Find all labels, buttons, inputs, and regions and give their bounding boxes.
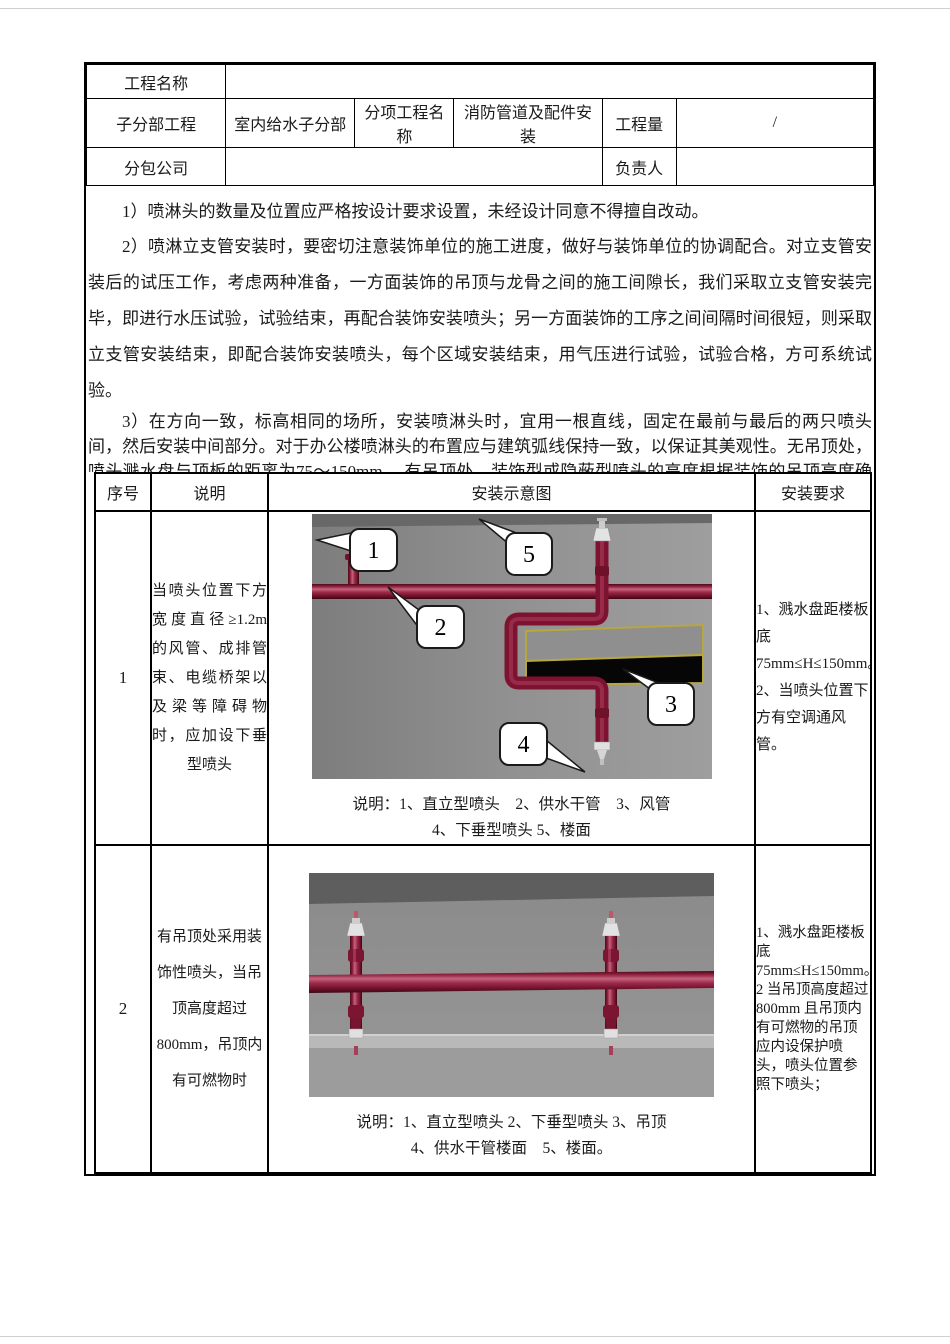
- row2-number: 2: [95, 845, 151, 1173]
- sub-division-value: 室内给水子分部: [226, 99, 355, 148]
- subcontractor-label: 分包公司: [87, 148, 226, 186]
- row1-diagram: 1 5 2: [312, 514, 712, 779]
- project-info-table: 工程名称 子分部工程 室内给水子分部 分项工程名称 消防管道及配件安装 工程量 …: [86, 64, 874, 186]
- row2-diagram: [309, 873, 714, 1097]
- col-header-diagram: 安装示意图: [268, 473, 755, 511]
- paragraph-1: 1）喷淋头的数量及位置应严格按设计要求设置，未经设计同意不得擅自改动。: [88, 194, 872, 229]
- below-ceiling-area: [309, 1048, 714, 1097]
- page-bottom-edge: [0, 1336, 950, 1337]
- row1-caption-line2: 4、下垂型喷头 5、楼面: [269, 818, 754, 844]
- ceiling-sprinkler-diagram: [309, 873, 714, 1097]
- row2-description: 有吊顶处采用装饰性喷头，当吊顶高度超过800mm，吊顶内有可燃物时: [152, 919, 267, 1099]
- sprinkler-duct-diagram: 1 5 2: [312, 514, 712, 779]
- manager-label: 负责人: [602, 148, 676, 186]
- col-header-requirements: 安装要求: [755, 473, 871, 511]
- row1-caption-line1: 说明：1、直立型喷头 2、供水干管 3、风管: [269, 792, 754, 818]
- row1-caption: 说明：1、直立型喷头 2、供水干管 3、风管 4、下垂型喷头 5、楼面: [269, 792, 754, 844]
- callout-5-label: 5: [523, 542, 535, 568]
- quantity-value: /: [676, 99, 873, 148]
- row2-requirements: 1、溅水盘距楼板底75mm≤H≤150mm。 2 当吊顶高度超过 800mm 且…: [756, 924, 870, 1095]
- page-top-edge: [0, 8, 950, 9]
- row2-caption: 说明：1、直立型喷头 2、下垂型喷头 3、吊顶 4、供水干管楼面 5、楼面。: [269, 1110, 754, 1162]
- body-paragraphs: 1）喷淋头的数量及位置应严格按设计要求设置，未经设计同意不得擅自改动。 2）喷淋…: [86, 186, 874, 472]
- project-name-value: [226, 65, 874, 99]
- callout-2-label: 2: [434, 615, 446, 641]
- installation-table: 序号 说明 安装示意图 安装要求 1 当喷头位置下方宽度直径≥1.2m 的风管、…: [94, 472, 872, 1174]
- document-body: 工程名称 子分部工程 室内给水子分部 分项工程名称 消防管道及配件安装 工程量 …: [84, 62, 876, 1176]
- sub-item-label: 分项工程名称: [355, 99, 454, 148]
- callout-1-label: 1: [367, 538, 379, 564]
- suspended-ceiling-edge: [309, 1034, 714, 1036]
- row2-caption-line1: 说明：1、直立型喷头 2、下垂型喷头 3、吊顶: [269, 1110, 754, 1136]
- manager-value: [676, 148, 873, 186]
- callout-4-label: 4: [517, 732, 529, 758]
- row1-description: 当喷头位置下方宽度直径≥1.2m 的风管、成排管束、电缆桥架以及梁等障碍物时，应…: [152, 577, 267, 780]
- subcontractor-value: [226, 148, 602, 186]
- sub-division-label: 子分部工程: [87, 99, 226, 148]
- quantity-label: 工程量: [602, 99, 676, 148]
- document-page: 工程名称 子分部工程 室内给水子分部 分项工程名称 消防管道及配件安装 工程量 …: [0, 0, 950, 1344]
- suspended-ceiling: [309, 1036, 714, 1048]
- col-header-description: 说明: [151, 473, 268, 511]
- row1-requirements: 1、溅水盘距楼板底75mm≤H≤150mm。 2、当喷头位置下方有空调通风管。: [756, 597, 870, 759]
- paragraph-3: 3）在方向一致，标高相同的场所，安装喷淋头时，宜用一根直线，固定在最前与最后的两…: [88, 409, 872, 472]
- callout-3-label: 3: [665, 692, 677, 718]
- col-header-no: 序号: [95, 473, 151, 511]
- table-row: 1 当喷头位置下方宽度直径≥1.2m 的风管、成排管束、电缆桥架以及梁等障碍物时…: [95, 511, 871, 845]
- supply-main-pipe: [312, 584, 712, 599]
- row2-caption-line2: 4、供水干管楼面 5、楼面。: [269, 1136, 754, 1162]
- paragraph-2: 2）喷淋立支管安装时，要密切注意装饰单位的施工进度，做好与装饰单位的协调配合。对…: [88, 229, 872, 409]
- table-row: 2 有吊顶处采用装饰性喷头，当吊顶高度超过800mm，吊顶内有可燃物时: [95, 845, 871, 1173]
- installation-table-header-row: 序号 说明 安装示意图 安装要求: [95, 473, 871, 511]
- project-name-label: 工程名称: [87, 65, 226, 99]
- row1-diagram-cell: 1 5 2: [268, 511, 755, 845]
- row1-number: 1: [95, 511, 151, 845]
- sub-item-value: 消防管道及配件安装: [454, 99, 602, 148]
- air-duct: [526, 625, 703, 685]
- row2-diagram-cell: 说明：1、直立型喷头 2、下垂型喷头 3、吊顶 4、供水干管楼面 5、楼面。: [268, 845, 755, 1173]
